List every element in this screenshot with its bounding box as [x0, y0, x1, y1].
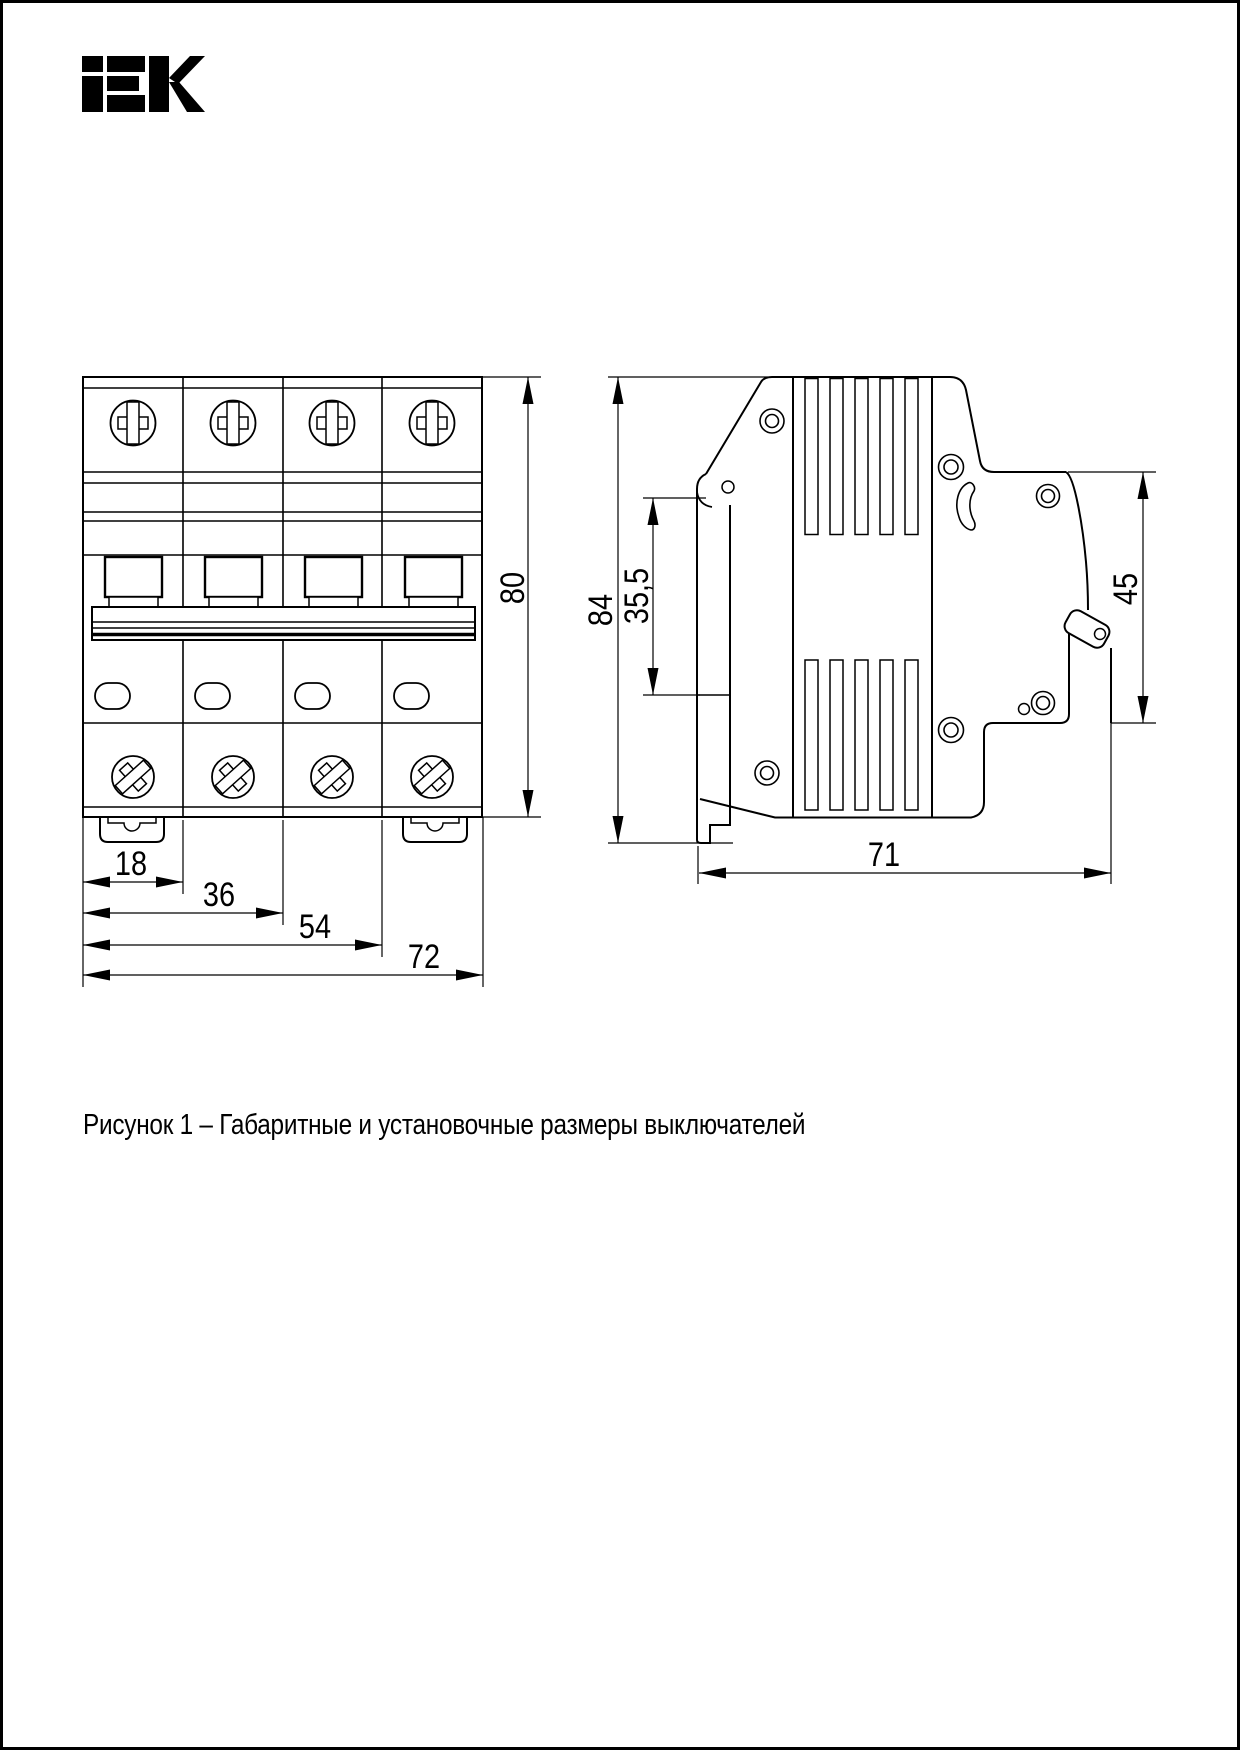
- side-din-clip: [697, 474, 730, 843]
- label-windows: [95, 683, 429, 709]
- document-page: 80 18 36 54: [0, 0, 1240, 1750]
- rivets: [722, 409, 1060, 785]
- dim-18-label: 18: [115, 844, 147, 883]
- front-view: [83, 377, 482, 842]
- dim-54-label: 54: [299, 907, 331, 946]
- curved-slot: [957, 483, 975, 530]
- dimension-84: 84: [581, 377, 768, 843]
- dim-72-label: 72: [408, 937, 440, 976]
- dim-84-label: 84: [581, 594, 620, 626]
- dimension-drawing: 80 18 36 54: [0, 0, 1240, 1100]
- dim-71-label: 71: [868, 835, 900, 874]
- toggle-tie-bar: [92, 607, 475, 640]
- vent-slots-upper: [805, 379, 918, 535]
- vent-slots-lower: [805, 660, 918, 810]
- din-clip-left: [100, 817, 164, 842]
- dim-45-label: 45: [1106, 573, 1145, 605]
- figure-caption: Рисунок 1 – Габаритные и установочные ра…: [83, 1109, 805, 1142]
- dimensions: 80 18 36 54: [83, 377, 1156, 987]
- dim-36-label: 36: [203, 875, 235, 914]
- dimension-80: 80: [482, 377, 541, 817]
- side-view: [697, 377, 1112, 843]
- din-clip-right: [403, 817, 467, 842]
- dim-35-5-label: 35,5: [617, 568, 656, 624]
- dimension-35-5: 35,5: [617, 498, 706, 695]
- dim-80-label: 80: [493, 572, 532, 604]
